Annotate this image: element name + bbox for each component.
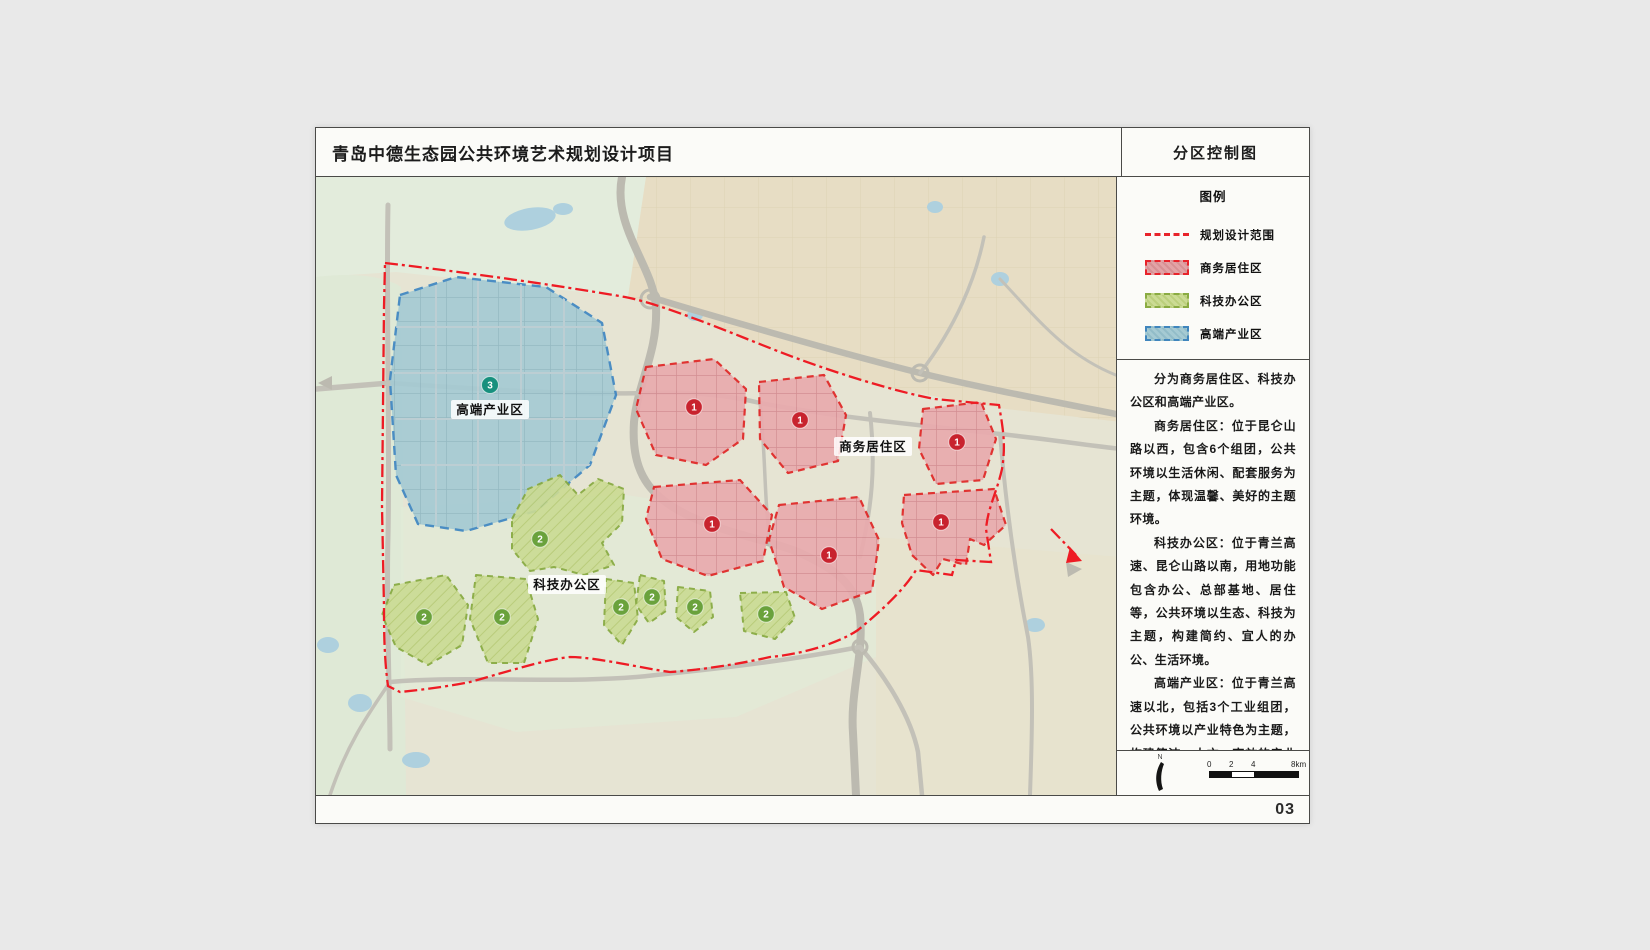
hatch-swatch-icon	[1145, 326, 1189, 341]
hatch-swatch-icon	[1145, 260, 1189, 275]
svg-text:1: 1	[709, 520, 715, 531]
scale-tick: 4	[1251, 760, 1255, 769]
zone-marker: 2	[416, 609, 433, 626]
zone-marker: 2	[494, 609, 511, 626]
zone-marker: 1	[704, 516, 721, 533]
desktop-background: 青岛中德生态园公共环境艺术规划设计项目 分区控制图	[0, 0, 1650, 950]
legend: 图例 规划设计范围 商务居住区 科技办公区	[1117, 177, 1309, 359]
page-number: 03	[1275, 801, 1295, 819]
zone-label-business: 商务居住区	[834, 437, 912, 456]
zone-marker: 2	[613, 599, 630, 616]
legend-heading: 图例	[1117, 186, 1309, 205]
north-arrow-icon: N	[1151, 754, 1169, 793]
scale-tick: 8km	[1291, 760, 1306, 769]
svg-text:科技办公区: 科技办公区	[533, 577, 601, 592]
footer-strip: 03	[316, 795, 1309, 823]
zone-tech-parcel	[512, 475, 624, 575]
svg-text:商务居住区: 商务居住区	[839, 439, 907, 454]
drawing-title: 分区控制图	[1121, 128, 1309, 176]
scale-tick: 0	[1207, 760, 1211, 769]
svg-text:2: 2	[499, 613, 505, 624]
svg-text:1: 1	[938, 518, 944, 529]
zone-marker: 1	[949, 434, 966, 451]
zone-marker: 1	[933, 514, 950, 531]
map-panel: 3 1 1 1 1 1 1 2 2 2 2 2 2 2	[316, 177, 1116, 795]
zone-marker: 2	[758, 606, 775, 623]
svg-text:2: 2	[692, 603, 698, 614]
desc-paragraph: 高端产业区：位于青兰高速以北，包括3个工业组团，公共环境以产业特色为主题，构建简…	[1130, 672, 1296, 750]
legend-item-boundary: 规划设计范围	[1117, 218, 1309, 251]
svg-text:2: 2	[618, 603, 624, 614]
zoning-map: 3 1 1 1 1 1 1 2 2 2 2 2 2 2	[316, 177, 1116, 795]
plan-sheet: 青岛中德生态园公共环境艺术规划设计项目 分区控制图	[315, 127, 1310, 824]
project-title: 青岛中德生态园公共环境艺术规划设计项目	[316, 128, 1121, 176]
hatch-swatch-icon	[1145, 293, 1189, 308]
svg-text:2: 2	[763, 610, 769, 621]
svg-text:2: 2	[421, 613, 427, 624]
zone-label-industry: 高端产业区	[451, 400, 529, 419]
svg-text:高端产业区: 高端产业区	[456, 402, 524, 417]
zone-marker: 1	[792, 412, 809, 429]
content-row: 3 1 1 1 1 1 1 2 2 2 2 2 2 2	[316, 177, 1309, 795]
dashed-line-swatch-icon	[1145, 233, 1189, 236]
svg-text:2: 2	[649, 593, 655, 604]
svg-text:2: 2	[537, 535, 543, 546]
legend-item-industry: 高端产业区	[1117, 317, 1309, 350]
scale-section: N 0 2 4 8km	[1117, 750, 1309, 795]
zone-marker: 1	[686, 399, 703, 416]
desc-paragraph: 商务居住区：位于昆仑山路以西，包含6个组团，公共环境以生活休闲、配套服务为主题，…	[1130, 415, 1296, 532]
scale-bar: 0 2 4 8km	[1209, 760, 1309, 786]
svg-text:1: 1	[797, 416, 803, 427]
legend-item-tech: 科技办公区	[1117, 284, 1309, 317]
zone-marker: 3	[482, 377, 499, 394]
zone-marker: 2	[687, 599, 704, 616]
zone-marker: 2	[644, 589, 661, 606]
desc-paragraph: 科技办公区：位于青兰高速、昆仑山路以南，用地功能包含办公、总部基地、居住等，公共…	[1130, 532, 1296, 672]
scale-tick: 2	[1229, 760, 1233, 769]
legend-item-business: 商务居住区	[1117, 251, 1309, 284]
zone-description: 分为商务居住区、科技办公区和高端产业区。 商务居住区：位于昆仑山路以西，包含6个…	[1117, 359, 1309, 750]
zone-marker: 2	[532, 531, 549, 548]
desc-paragraph: 分为商务居住区、科技办公区和高端产业区。	[1130, 368, 1296, 415]
zone-label-tech: 科技办公区	[528, 575, 606, 594]
title-row: 青岛中德生态园公共环境艺术规划设计项目 分区控制图	[316, 128, 1309, 177]
svg-text:3: 3	[487, 381, 493, 392]
sidebar: 图例 规划设计范围 商务居住区 科技办公区	[1116, 177, 1309, 795]
zone-marker: 1	[821, 547, 838, 564]
svg-text:1: 1	[954, 438, 960, 449]
svg-text:1: 1	[691, 403, 697, 414]
svg-text:1: 1	[826, 551, 832, 562]
